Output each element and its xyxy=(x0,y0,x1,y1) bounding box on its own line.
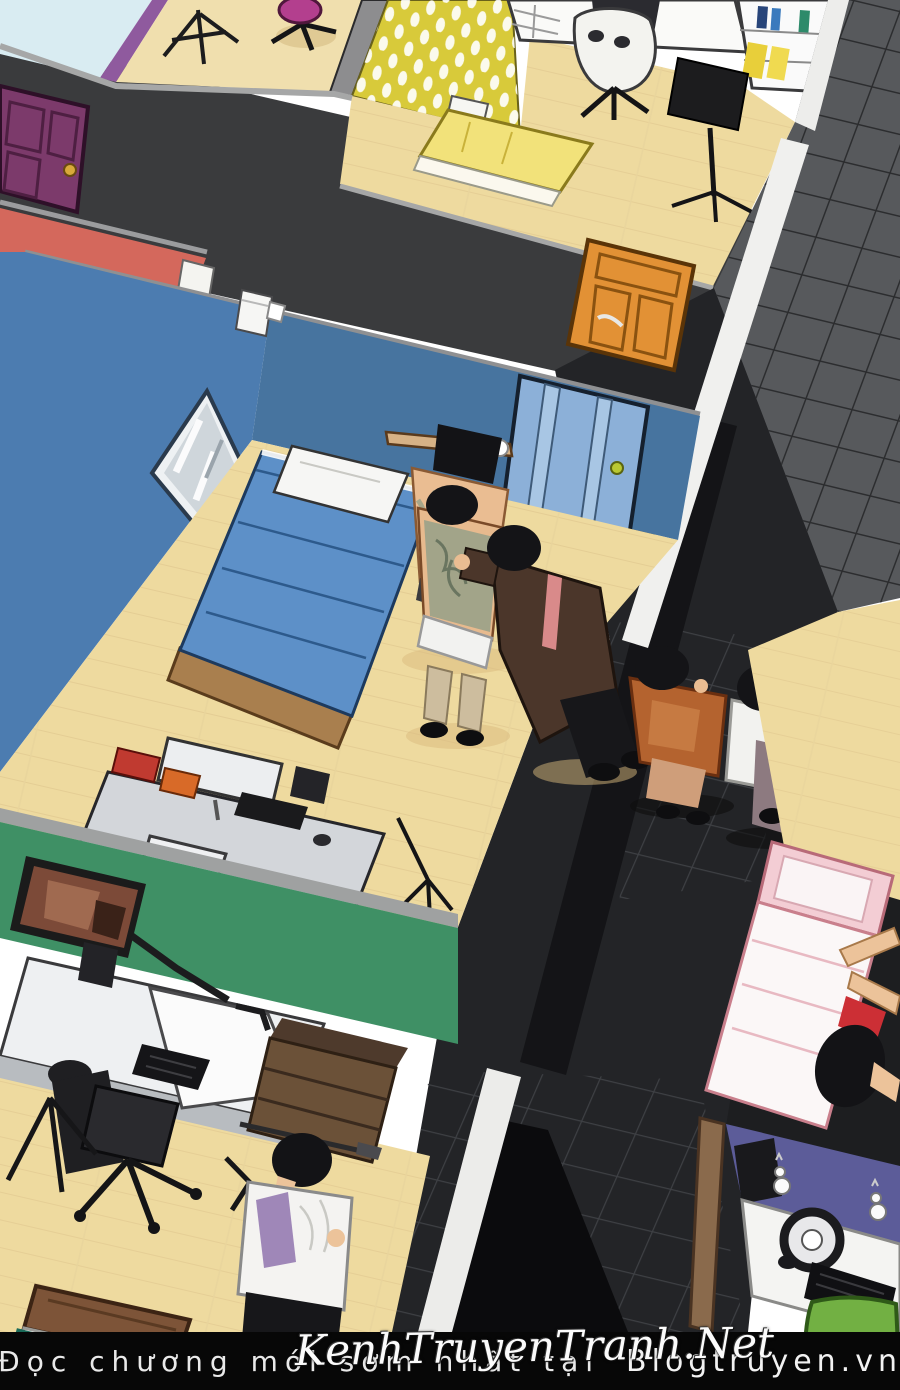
orange-door xyxy=(568,240,694,370)
speaker-cube xyxy=(78,942,118,988)
tattooed-leg xyxy=(424,666,452,724)
watermark-text: KenhTruyenTranh.Net xyxy=(295,1318,775,1375)
hand xyxy=(454,554,470,570)
blue-door-knob xyxy=(611,462,623,474)
apartment-cutaway-illustration xyxy=(0,0,900,1390)
purple-door xyxy=(0,86,88,212)
head-hair xyxy=(487,525,541,571)
webtoon-panel: Đọc chương mới sớm nhất tại Blogtruyen.v… xyxy=(0,0,900,1390)
door-knob xyxy=(64,164,76,176)
mouse xyxy=(778,1255,798,1269)
hand xyxy=(327,1229,345,1247)
mouse xyxy=(313,834,331,846)
head-hair xyxy=(426,485,478,525)
